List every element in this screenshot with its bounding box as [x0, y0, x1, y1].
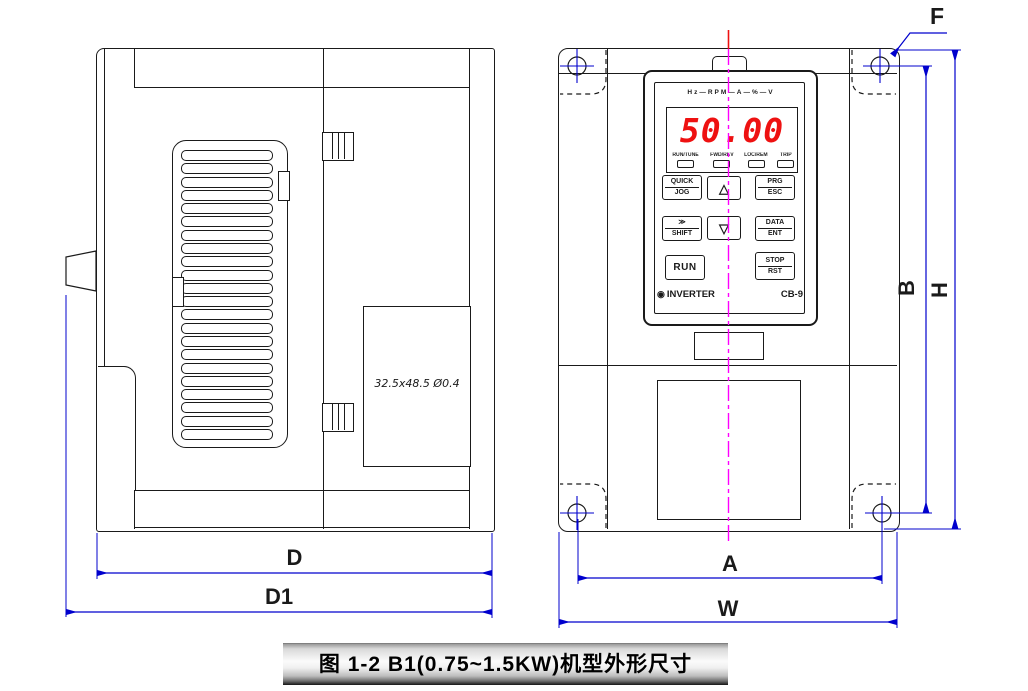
din-clamp-top-line: [338, 132, 339, 159]
vent-slot: [181, 283, 273, 294]
vent-slot: [181, 270, 273, 281]
status-led: TRIP: [777, 152, 794, 168]
frequency-readout: 50.00: [667, 108, 797, 152]
unit-indicator-icons: Hz—RPM—A—%—V: [666, 89, 796, 96]
vent-slot: [181, 389, 273, 400]
side-divider-line: [323, 49, 324, 529]
vent-slot: [181, 150, 273, 161]
dimension-label-d1: D1: [66, 586, 492, 608]
vent-slot: [181, 309, 273, 320]
status-led: FWD/REV: [708, 152, 736, 168]
down-arrow-button: ▽: [707, 216, 741, 240]
side-top-band-edge: [134, 49, 135, 87]
nameplate-area: 32.5x48.5 Ø0.4: [363, 306, 471, 467]
prg-label: PRG: [758, 177, 792, 188]
led-lamp-icon: [748, 160, 765, 168]
grille-clip-left: [172, 277, 184, 307]
up-arrow-icon: △: [708, 182, 740, 195]
side-knob-outline: [66, 251, 96, 291]
shift-glyph-icon: ≫: [665, 218, 699, 229]
vent-slot: [181, 216, 273, 227]
shift-label: SHIFT: [663, 229, 701, 239]
data-ent-button: DATA ENT: [755, 216, 795, 241]
brand-logo-icon: ◉: [657, 290, 665, 299]
lower-small-cutout: [694, 332, 764, 360]
dimension-label-a: A: [578, 553, 882, 575]
dimension-label-f: F: [922, 5, 952, 28]
vent-slot: [181, 376, 273, 387]
figure-caption-bar: 图 1-2 B1(0.75~1.5KW)机型外形尺寸: [283, 643, 728, 685]
din-clamp-bottom-line: [344, 403, 345, 430]
side-bottom-inner-line: [134, 527, 469, 528]
run-button: RUN: [665, 255, 705, 280]
up-arrow-button: △: [707, 176, 741, 200]
status-led-label: TRIP: [780, 153, 792, 159]
brand-label: INVERTER: [667, 289, 715, 300]
dimension-label-w: W: [559, 598, 897, 620]
din-clamp-bottom-line: [338, 403, 339, 430]
nameplate-text: 32.5x48.5 Ø0.4: [364, 377, 470, 390]
side-front-strip-line: [104, 49, 105, 366]
led-lamp-icon: [713, 160, 730, 168]
led-lamp-icon: [777, 160, 794, 168]
status-led-label: FWD/REV: [710, 153, 734, 159]
shift-button: ≫ SHIFT: [662, 216, 702, 241]
data-label: DATA: [758, 218, 792, 229]
vent-slot: [181, 349, 273, 360]
stop-label: STOP: [758, 256, 792, 267]
side-bottom-band-line: [134, 490, 469, 491]
run-label: RUN: [666, 262, 704, 274]
vent-slot: [181, 323, 273, 334]
stop-rst-button: STOP RST: [755, 252, 795, 280]
vent-slot: [181, 256, 273, 267]
grille-clip-right: [278, 171, 290, 201]
vent-slot: [181, 402, 273, 413]
vent-slot: [181, 203, 273, 214]
vent-slot: [181, 363, 273, 374]
figure-canvas: 32.5x48.5 Ø0.4 D D1 Hz—RPM—A—%—V 50.00 R…: [0, 0, 1028, 691]
vent-slot: [181, 243, 273, 254]
din-clamp-bottom-line: [332, 403, 333, 430]
esc-label: ESC: [756, 188, 794, 198]
din-clamp-top-line: [332, 132, 333, 159]
vent-slot: [181, 190, 273, 201]
keypad-brand-row: ◉ INVERTER CB-9: [657, 289, 803, 300]
status-led: RUN/TUNE: [670, 152, 701, 168]
vent-slot: [181, 429, 273, 440]
status-led-label: RUN/TUNE: [672, 153, 698, 159]
led-lamp-icon: [677, 160, 694, 168]
ent-label: ENT: [756, 229, 794, 239]
dimension-label-b: B: [896, 277, 918, 299]
led-display: 50.00 RUN/TUNE FWD/REV LOC/REM: [666, 107, 798, 173]
front-right-seam: [849, 49, 850, 529]
vent-slot: [181, 416, 273, 427]
f-leader-line: [893, 33, 947, 55]
rst-label: RST: [756, 267, 794, 277]
jog-label: JOG: [663, 188, 701, 198]
dimension-label-d: D: [97, 547, 492, 569]
dimension-label-h: H: [929, 279, 951, 301]
front-left-seam: [607, 49, 608, 529]
vent-slots: [181, 150, 273, 440]
down-arrow-icon: ▽: [708, 222, 740, 235]
terminal-cover: [657, 380, 801, 520]
quick-label: QUICK: [665, 177, 699, 188]
quick-jog-button: QUICK JOG: [662, 175, 702, 200]
keypad-model-label: CB-9: [781, 289, 803, 300]
status-led: LOC/REM: [742, 152, 770, 168]
status-led-label: LOC/REM: [744, 153, 768, 159]
vent-slot: [181, 336, 273, 347]
status-led-row: RUN/TUNE FWD/REV LOC/REM TRIP: [667, 152, 797, 172]
prg-esc-button: PRG ESC: [755, 175, 795, 200]
din-clamp-top-line: [344, 132, 345, 159]
front-lower-seam: [559, 365, 897, 366]
vent-slot: [181, 163, 273, 174]
side-top-band-line: [134, 87, 469, 88]
figure-caption-text: 图 1-2 B1(0.75~1.5KW)机型外形尺寸: [319, 648, 692, 678]
vent-slot: [181, 296, 273, 307]
side-lower-step: [98, 366, 136, 491]
vent-slot: [181, 230, 273, 241]
side-bottom-band-edge: [134, 490, 135, 529]
vent-slot: [181, 177, 273, 188]
